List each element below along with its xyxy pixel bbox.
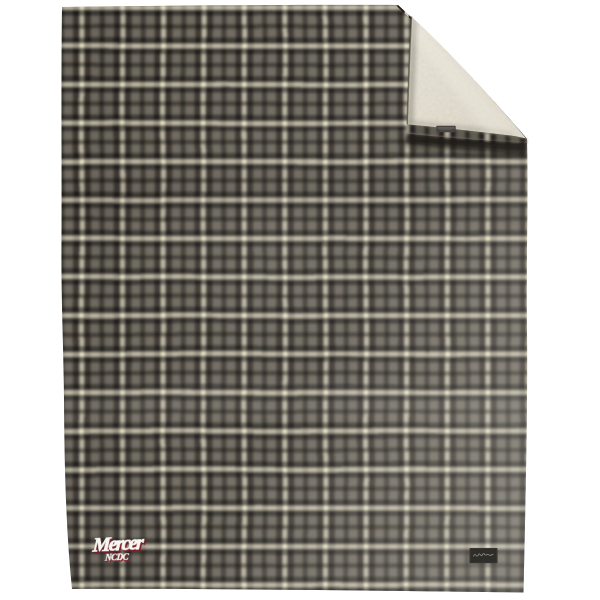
- svg-text:NCDC: NCDC: [104, 552, 130, 563]
